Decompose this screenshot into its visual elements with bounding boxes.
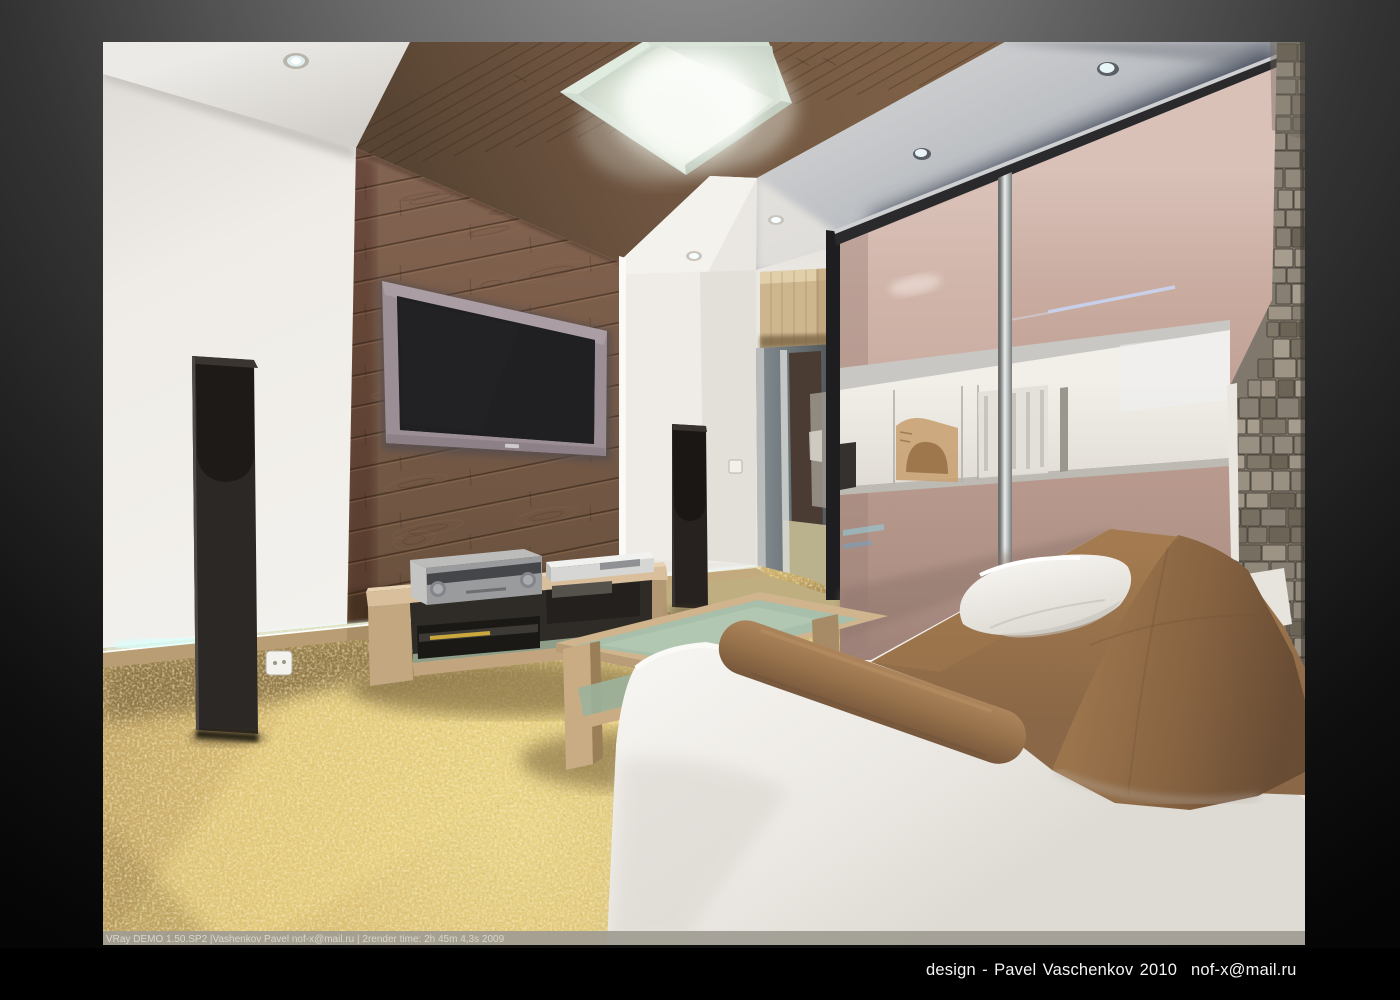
svg-text:nof-x@mail.ru: nof-x@mail.ru <box>1191 961 1297 979</box>
svg-text:VRay DEMO 1.50.SP2 |Vashenkov: VRay DEMO 1.50.SP2 |Vashenkov Pavel nof-… <box>106 934 505 945</box>
svg-text:design - Pavel Vaschenkov 201: design - Pavel Vaschenkov 2010 <box>926 961 1177 979</box>
